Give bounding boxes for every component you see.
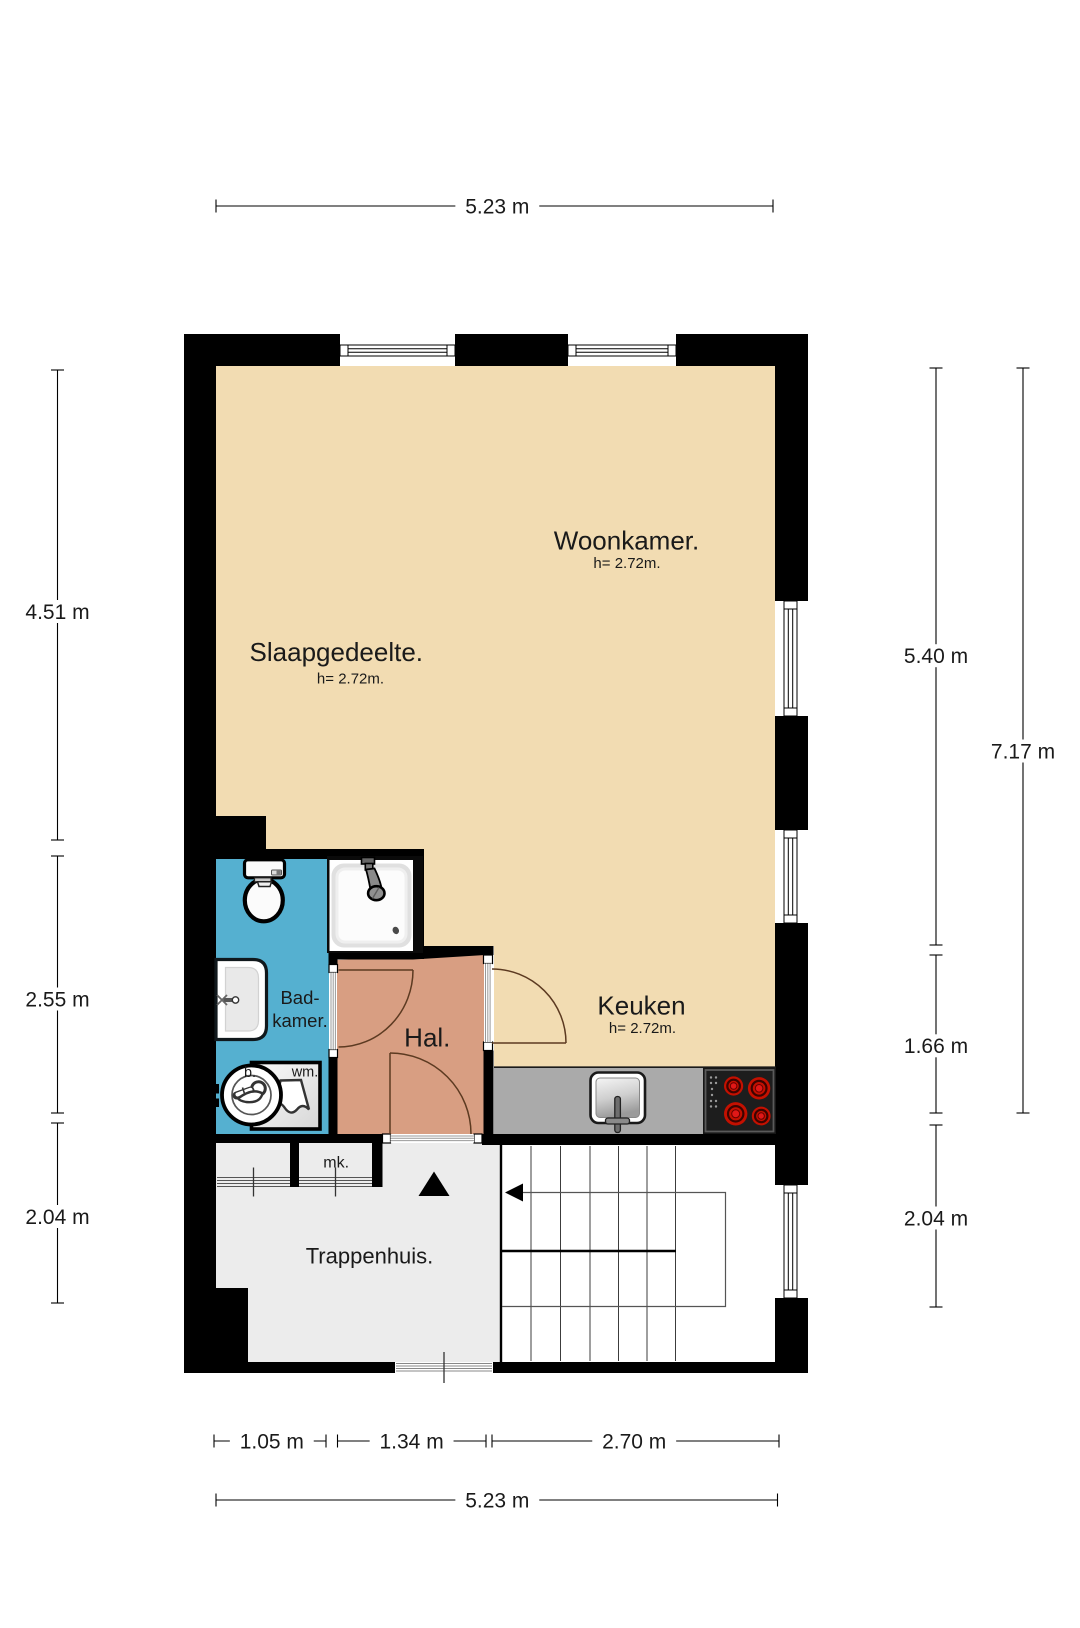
svg-text:1.05 m: 1.05 m: [240, 1430, 304, 1453]
svg-text:5.23 m: 5.23 m: [465, 1489, 529, 1512]
svg-text:kamer.: kamer.: [272, 1010, 328, 1031]
svg-text:wm.: wm.: [291, 1065, 319, 1081]
svg-text:Woonkamer.: Woonkamer.: [554, 525, 699, 555]
svg-text:Trappenhuis.: Trappenhuis.: [306, 1244, 434, 1269]
svg-text:b.: b.: [244, 1065, 256, 1081]
svg-text:5.40 m: 5.40 m: [904, 645, 968, 668]
svg-text:2.55 m: 2.55 m: [25, 988, 89, 1011]
svg-text:1.34 m: 1.34 m: [379, 1430, 443, 1453]
svg-text:Keuken: Keuken: [597, 990, 685, 1020]
svg-text:Slaapgedeelte.: Slaapgedeelte.: [250, 637, 423, 667]
svg-text:Bad-: Bad-: [280, 987, 319, 1008]
svg-text:4.51 m: 4.51 m: [25, 601, 89, 624]
svg-text:2.04 m: 2.04 m: [904, 1207, 968, 1230]
svg-text:5.23 m: 5.23 m: [465, 195, 529, 218]
svg-text:Hal.: Hal.: [404, 1023, 450, 1053]
svg-text:2.70 m: 2.70 m: [602, 1430, 666, 1453]
svg-text:mk.: mk.: [323, 1154, 349, 1171]
svg-text:h= 2.72m.: h= 2.72m.: [317, 671, 384, 688]
svg-text:1.66 m: 1.66 m: [904, 1035, 968, 1058]
svg-text:h= 2.72m.: h= 2.72m.: [593, 555, 660, 572]
svg-text:2.04 m: 2.04 m: [25, 1206, 89, 1229]
svg-text:7.17 m: 7.17 m: [991, 740, 1055, 763]
svg-text:h= 2.72m.: h= 2.72m.: [609, 1020, 676, 1037]
